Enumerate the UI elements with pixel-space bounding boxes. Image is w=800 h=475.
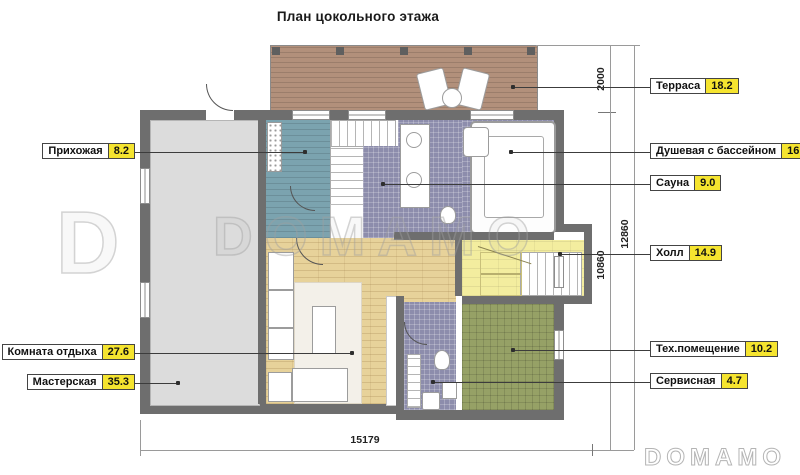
window [140, 168, 150, 204]
sink [406, 172, 422, 188]
shelf-unit [268, 328, 294, 360]
toilet [440, 206, 456, 224]
room-area-badge: 18.2 [706, 78, 738, 94]
wall-hall-right [584, 224, 592, 304]
page-title: План цокольного этажа [238, 9, 478, 24]
pool-step [463, 127, 489, 157]
window [292, 110, 330, 120]
window [140, 282, 150, 318]
room-area-badge: 10.2 [746, 341, 778, 357]
dim-tick [592, 444, 593, 456]
room-area-badge: 9.0 [695, 175, 721, 191]
terrace-post [400, 47, 408, 55]
room-name: Мастерская [27, 374, 103, 390]
dim-house-height: 10860 [595, 243, 607, 287]
leader-dot [558, 252, 562, 256]
washing-machine [422, 392, 440, 410]
leader-dot [431, 380, 435, 384]
room-area-badge: 4.7 [722, 373, 748, 389]
dim-line-inner [610, 45, 611, 450]
room-name: Комната отдыха [2, 344, 103, 360]
room-tech-floor [462, 304, 554, 410]
leader-line [560, 254, 650, 255]
callout-shower-pool: Душевая с бассейном16.8 [650, 143, 800, 159]
room-name: Терраса [650, 78, 706, 94]
wall-left [140, 110, 150, 414]
leader-line [511, 152, 650, 153]
leader-dot [303, 150, 307, 154]
dim-total-width: 15179 [320, 434, 410, 446]
terrace-post [527, 47, 535, 55]
leader-line [513, 350, 650, 351]
wall-bottom-right [396, 410, 564, 420]
toilet [434, 350, 450, 370]
sink [406, 132, 422, 148]
leader-dot [511, 85, 515, 89]
callout-workshop: Мастерская35.3 [27, 374, 135, 390]
door-opening [206, 110, 234, 120]
watermark-fragment: D [56, 192, 120, 294]
leader-line [433, 382, 650, 383]
hall-stairs [520, 252, 582, 296]
door-swing [206, 84, 233, 111]
room-workshop-floor [150, 120, 260, 406]
leader-dot [509, 150, 513, 154]
dim-ext-left [140, 420, 141, 456]
service-shelves [407, 354, 421, 408]
room-area-badge: 27.6 [103, 344, 135, 360]
callout-hallway: Прихожая8.2 [42, 143, 135, 159]
terrace-post [464, 47, 472, 55]
window [554, 330, 564, 360]
callout-terrace: Терраса18.2 [650, 78, 739, 94]
main-stairs-upper [330, 120, 396, 148]
room-name: Сауна [650, 175, 695, 191]
stairs-landing [330, 204, 365, 240]
terrace-deck [270, 45, 538, 114]
room-name: Тех.помещение [650, 341, 746, 357]
room-area-badge: 14.9 [690, 245, 722, 261]
main-stairs-run [330, 146, 365, 206]
wall-service-left [396, 296, 404, 410]
leader-line [135, 152, 305, 153]
room-area-badge: 35.3 [103, 374, 135, 390]
sofa [292, 368, 348, 402]
room-area-badge: 8.2 [109, 143, 135, 159]
shelf-unit [268, 252, 294, 290]
table-island [312, 306, 336, 354]
terrace-table [442, 88, 462, 108]
window [470, 110, 514, 120]
wall-workshop-divider [258, 120, 266, 404]
wall-tech-top [462, 296, 554, 304]
leader-dot [381, 182, 385, 186]
leader-line [383, 184, 650, 185]
room-name: Прихожая [42, 143, 108, 159]
wash-basin [442, 382, 457, 399]
wall-hall-bottom [554, 296, 592, 304]
domamo-logo: DOMAMO [644, 444, 786, 472]
terrace-post [272, 47, 280, 55]
callout-tech-room: Тех.помещение10.2 [650, 341, 778, 357]
pool-basin [484, 136, 544, 218]
dim-line-bottom [140, 450, 634, 451]
callout-lounge: Комната отдыха27.6 [2, 344, 135, 360]
dim-total-height: 12860 [619, 212, 631, 256]
leader-dot [511, 348, 515, 352]
terrace-post [336, 47, 344, 55]
leader-line [135, 383, 178, 384]
dim-line-outer [634, 45, 635, 450]
wall-lounge-top [394, 232, 554, 240]
room-sauna-floor [363, 146, 398, 238]
shelf-unit [268, 290, 294, 328]
room-area-badge: 16.8 [782, 143, 800, 159]
dim-terrace-depth: 2000 [595, 59, 607, 99]
leader-dot [350, 351, 354, 355]
hallway-closet [267, 122, 282, 172]
window [348, 110, 386, 120]
callout-sauna: Сауна9.0 [650, 175, 721, 191]
cabinet [268, 372, 292, 402]
leader-line [135, 353, 352, 354]
leader-line [513, 87, 650, 88]
callout-hall: Холл14.9 [650, 245, 722, 261]
dim-tick [598, 112, 616, 113]
leader-dot [176, 381, 180, 385]
window [554, 256, 564, 288]
dim-ext-top [536, 45, 640, 46]
room-name: Душевая с бассейном [650, 143, 782, 159]
room-name: Сервисная [650, 373, 722, 389]
floor-plan-page: План цокольного этажа [0, 0, 800, 475]
callout-service-room: Сервисная4.7 [650, 373, 748, 389]
room-name: Холл [650, 245, 690, 261]
